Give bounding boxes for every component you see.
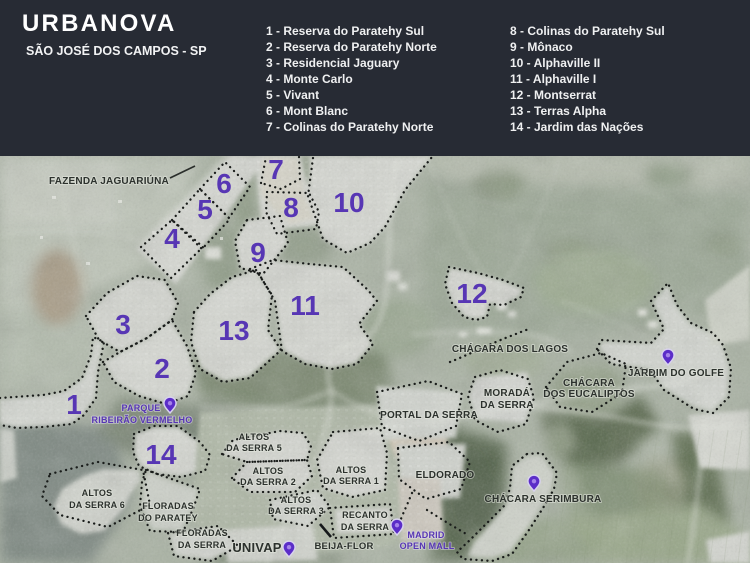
- svg-text:CHÁCARA DOS LAGOS: CHÁCARA DOS LAGOS: [452, 342, 568, 355]
- svg-text:RECANTO: RECANTO: [342, 510, 388, 520]
- svg-text:8: 8: [283, 192, 299, 223]
- svg-text:DA SERRA: DA SERRA: [178, 540, 227, 550]
- svg-text:RIBEIRÃO VERMELHO: RIBEIRÃO VERMELHO: [92, 415, 193, 425]
- svg-text:FLORADAS: FLORADAS: [142, 501, 194, 511]
- svg-text:MORADÁ: MORADÁ: [484, 386, 530, 399]
- svg-text:CHÁCARA SERIMBURA: CHÁCARA SERIMBURA: [485, 492, 602, 505]
- svg-text:1: 1: [66, 389, 82, 420]
- svg-text:2: 2: [154, 353, 170, 384]
- svg-text:DA SERRA 5: DA SERRA 5: [226, 443, 282, 453]
- svg-text:ALTOS: ALTOS: [82, 488, 113, 498]
- svg-text:DA SERRA: DA SERRA: [341, 522, 390, 532]
- svg-text:PARQUE: PARQUE: [121, 403, 160, 413]
- svg-text:11: 11: [290, 290, 320, 321]
- svg-text:DA SERRA 6: DA SERRA 6: [69, 500, 125, 510]
- svg-text:OPEN MALL: OPEN MALL: [400, 541, 455, 551]
- svg-text:ALTOS: ALTOS: [281, 495, 312, 505]
- svg-text:13: 13: [218, 315, 249, 346]
- svg-text:3: 3: [115, 309, 131, 340]
- svg-text:ALTOS: ALTOS: [239, 432, 270, 442]
- svg-text:14: 14: [145, 439, 177, 470]
- svg-text:DA SERRA 2: DA SERRA 2: [240, 477, 296, 487]
- svg-text:DA SERRA 3: DA SERRA 3: [268, 506, 324, 516]
- svg-text:4: 4: [164, 223, 180, 254]
- svg-text:DA SERRA 1: DA SERRA 1: [323, 476, 379, 486]
- svg-text:DO PARATEY: DO PARATEY: [138, 513, 198, 523]
- svg-text:FAZENDA JAGUARIÚNA: FAZENDA JAGUARIÚNA: [49, 174, 169, 187]
- svg-text:ELDORADO: ELDORADO: [416, 470, 475, 481]
- svg-text:MADRID: MADRID: [407, 530, 444, 540]
- svg-text:UNIVAP: UNIVAP: [232, 540, 281, 555]
- svg-text:5: 5: [197, 194, 213, 225]
- svg-text:10: 10: [333, 187, 364, 218]
- svg-text:7: 7: [268, 156, 284, 185]
- svg-text:CHÁCARA: CHÁCARA: [563, 376, 615, 389]
- svg-text:JARDIM DO GOLFE: JARDIM DO GOLFE: [628, 368, 724, 379]
- svg-text:BEIJA-FLOR: BEIJA-FLOR: [315, 541, 374, 552]
- svg-text:9: 9: [250, 237, 266, 268]
- svg-text:DOS EUCALIPTOS: DOS EUCALIPTOS: [543, 389, 635, 400]
- svg-text:12: 12: [456, 278, 487, 309]
- svg-text:DA SERRA: DA SERRA: [480, 400, 533, 411]
- svg-text:PORTAL DA SERRA: PORTAL DA SERRA: [380, 410, 478, 421]
- svg-text:ALTOS: ALTOS: [253, 466, 284, 476]
- svg-text:6: 6: [216, 168, 232, 199]
- svg-text:FLORADAS: FLORADAS: [176, 528, 228, 538]
- svg-text:ALTOS: ALTOS: [336, 465, 367, 475]
